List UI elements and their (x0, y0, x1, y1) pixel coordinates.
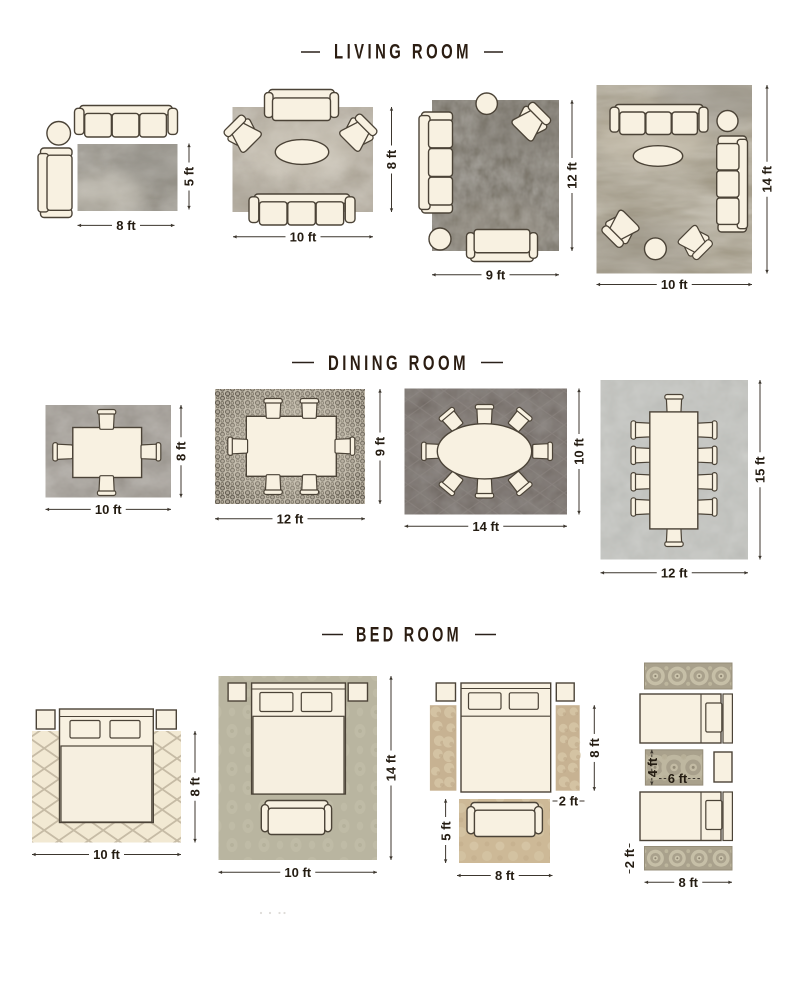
svg-text:5 ft: 5 ft (438, 821, 453, 841)
svg-text:10 ft: 10 ft (572, 437, 587, 464)
svg-text:10 ft: 10 ft (95, 502, 122, 517)
svg-text:LIVING ROOM: LIVING ROOM (334, 39, 472, 63)
svg-text:10 ft: 10 ft (93, 847, 120, 862)
svg-text:8 ft: 8 ft (174, 441, 189, 461)
svg-text:15 ft: 15 ft (753, 456, 768, 483)
svg-text:BED ROOM: BED ROOM (356, 622, 462, 647)
svg-text:12 ft: 12 ft (565, 161, 580, 188)
svg-text:8 ft: 8 ft (587, 738, 602, 758)
svg-text:14 ft: 14 ft (384, 754, 399, 781)
svg-text:12 ft: 12 ft (277, 512, 304, 527)
svg-text:6 ft: 6 ft (668, 771, 688, 786)
svg-text:14 ft: 14 ft (760, 165, 775, 192)
svg-text:9 ft: 9 ft (373, 436, 388, 456)
svg-text:10 ft: 10 ft (661, 277, 688, 292)
svg-text:8 ft: 8 ft (188, 776, 203, 796)
svg-text:8 ft: 8 ft (495, 868, 515, 883)
svg-text:12 ft: 12 ft (661, 566, 688, 581)
svg-text:14 ft: 14 ft (472, 519, 499, 534)
svg-text:10 ft: 10 ft (290, 230, 317, 245)
svg-text:9 ft: 9 ft (486, 268, 506, 283)
svg-text:8 ft: 8 ft (679, 875, 699, 890)
svg-text:2 ft: 2 ft (622, 848, 637, 868)
svg-text:5 ft: 5 ft (182, 166, 197, 186)
svg-text:8 ft: 8 ft (116, 218, 136, 233)
svg-text:10 ft: 10 ft (284, 865, 311, 880)
svg-text:DINING ROOM: DINING ROOM (328, 350, 469, 374)
svg-text:2 ft: 2 ft (559, 794, 579, 809)
svg-text:8 ft: 8 ft (384, 149, 399, 169)
svg-text:4 ft: 4 ft (645, 757, 660, 777)
